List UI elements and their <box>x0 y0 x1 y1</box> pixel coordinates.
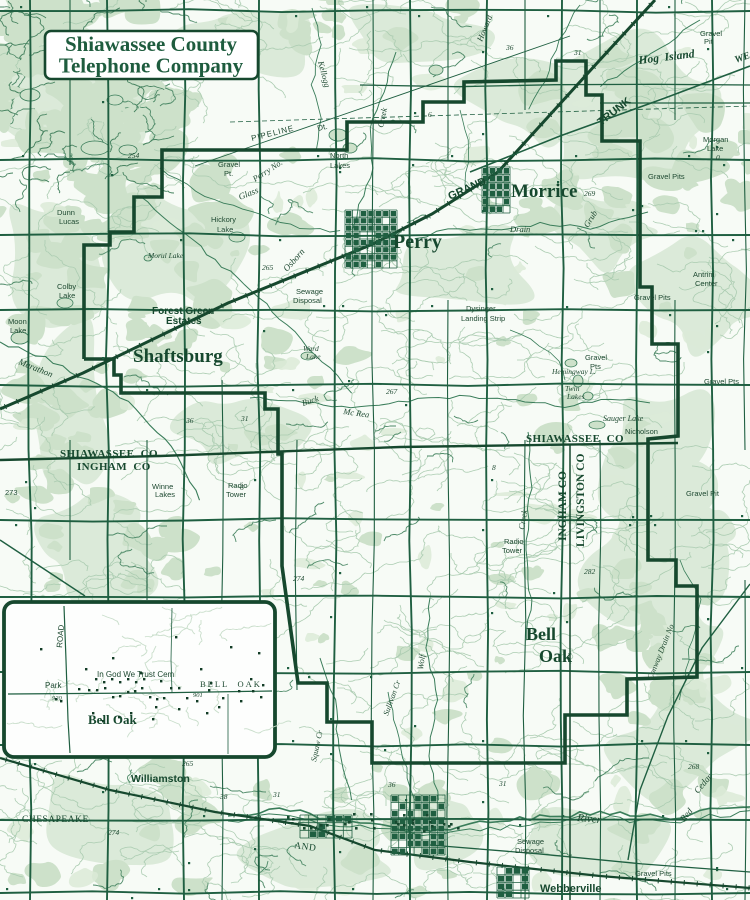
svg-text:Gravel: Gravel <box>585 353 607 362</box>
svg-text:Colby: Colby <box>57 282 76 291</box>
svg-text:Lakes: Lakes <box>155 490 175 499</box>
svg-text:Tower: Tower <box>502 546 523 555</box>
svg-text:Shaftsburg: Shaftsburg <box>133 346 223 367</box>
svg-text:Lake: Lake <box>305 352 321 361</box>
svg-text:Sewage: Sewage <box>296 287 323 296</box>
svg-text:36: 36 <box>185 416 194 425</box>
svg-text:274: 274 <box>108 828 120 837</box>
svg-text:31: 31 <box>240 414 249 423</box>
svg-text:Lucas: Lucas <box>59 217 79 226</box>
svg-text:8: 8 <box>492 463 496 472</box>
svg-text:Lakes: Lakes <box>330 161 350 170</box>
svg-text:Gravel Pts: Gravel Pts <box>704 377 739 386</box>
svg-text:36: 36 <box>387 780 396 789</box>
svg-text:268: 268 <box>688 762 700 771</box>
svg-text:Hickory: Hickory <box>211 215 236 224</box>
svg-text:Shiawassee County: Shiawassee County <box>65 32 238 56</box>
svg-text:6: 6 <box>428 110 432 119</box>
svg-text:273: 273 <box>5 488 18 497</box>
svg-text:Oak: Oak <box>539 646 572 666</box>
svg-text:901: 901 <box>193 692 203 699</box>
svg-text:CHESAPEAKE: CHESAPEAKE <box>22 815 89 825</box>
svg-text:Gravel Pits: Gravel Pits <box>635 869 672 878</box>
svg-text:River: River <box>576 812 602 826</box>
svg-text:920: 920 <box>52 695 63 702</box>
svg-text:INGHAM CO: INGHAM CO <box>557 471 569 541</box>
svg-text:Drain: Drain <box>509 224 530 234</box>
svg-text:282: 282 <box>584 567 596 576</box>
svg-text:LIVINGSTON CO: LIVINGSTON CO <box>575 454 587 547</box>
svg-text:31: 31 <box>498 779 507 788</box>
svg-text:Lakes: Lakes <box>566 392 585 401</box>
svg-text:6: 6 <box>240 483 244 492</box>
svg-text:274: 274 <box>293 574 305 583</box>
svg-text:Radio: Radio <box>228 481 248 490</box>
svg-text:Bell: Bell <box>526 624 556 644</box>
svg-text:Park: Park <box>45 681 62 690</box>
svg-text:Morul Lake: Morul Lake <box>147 251 184 260</box>
svg-text:265: 265 <box>262 263 274 272</box>
svg-text:Morgan: Morgan <box>703 135 728 144</box>
svg-text:267: 267 <box>386 387 398 396</box>
svg-text:31: 31 <box>573 48 582 57</box>
svg-text:Moon: Moon <box>8 317 27 326</box>
svg-text:Radio: Radio <box>504 537 524 546</box>
svg-text:Estates: Estates <box>166 316 202 327</box>
svg-text:Sewage: Sewage <box>517 837 544 846</box>
svg-text:BELL OAK: BELL OAK <box>200 679 262 689</box>
svg-text:Gravel: Gravel <box>218 160 240 169</box>
svg-text:Center: Center <box>695 279 718 288</box>
svg-text:Landing Strip: Landing Strip <box>461 314 505 323</box>
svg-text:SHIAWASSEE CO: SHIAWASSEE CO <box>526 433 624 445</box>
svg-text:265: 265 <box>182 759 194 768</box>
svg-text:Bell Oak: Bell Oak <box>88 712 138 727</box>
svg-text:Hemingway L.: Hemingway L. <box>551 367 596 376</box>
svg-text:36: 36 <box>505 43 514 52</box>
svg-text:31: 31 <box>272 790 281 799</box>
svg-text:Gravel Pits: Gravel Pits <box>648 172 685 181</box>
svg-text:SHIAWASSEE CO: SHIAWASSEE CO <box>60 448 158 460</box>
svg-text:Dunn: Dunn <box>57 208 75 217</box>
svg-text:269: 269 <box>584 189 596 198</box>
svg-text:Sauger Lake: Sauger Lake <box>603 414 644 423</box>
svg-text:Pt.: Pt. <box>224 169 233 178</box>
svg-text:Telephone Company: Telephone Company <box>59 54 244 78</box>
svg-text:0: 0 <box>716 153 720 162</box>
svg-text:Nicholson: Nicholson <box>625 427 658 436</box>
svg-text:Morrice: Morrice <box>511 181 577 202</box>
svg-text:Gravel Pit: Gravel Pit <box>686 489 720 498</box>
svg-text:Disposal: Disposal <box>293 296 322 305</box>
svg-text:Webberville: Webberville <box>540 883 602 895</box>
svg-text:Perry: Perry <box>393 231 442 253</box>
svg-text:254: 254 <box>128 151 140 160</box>
svg-text:North: North <box>330 151 348 160</box>
svg-text:Disposal: Disposal <box>515 846 544 855</box>
svg-text:Gravel Pits: Gravel Pits <box>634 293 671 302</box>
svg-text:Lake: Lake <box>217 225 233 234</box>
svg-text:38: 38 <box>219 792 228 801</box>
svg-text:Lake: Lake <box>59 291 75 300</box>
svg-text:INGHAM CO: INGHAM CO <box>77 461 151 473</box>
svg-text:Antrim: Antrim <box>693 270 715 279</box>
svg-text:Dysinger: Dysinger <box>466 304 496 313</box>
svg-text:Lake: Lake <box>10 326 26 335</box>
svg-text:Lake: Lake <box>707 144 723 153</box>
svg-text:Pit: Pit <box>704 37 714 46</box>
svg-text:In God We Trust Cem: In God We Trust Cem <box>97 670 175 679</box>
svg-text:Williamston: Williamston <box>131 773 190 785</box>
